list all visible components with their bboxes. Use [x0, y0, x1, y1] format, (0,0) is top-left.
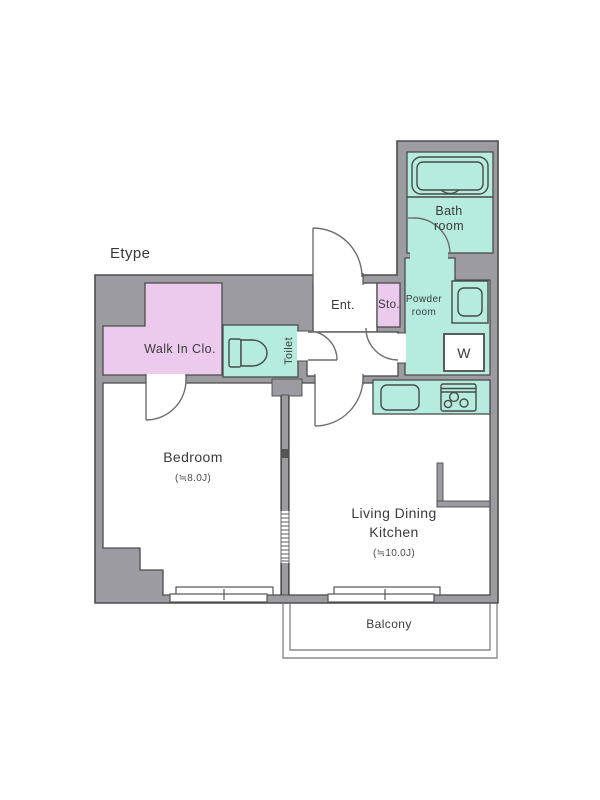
bedroom-label: Bedroom	[163, 449, 223, 465]
opening-bathroom	[410, 252, 448, 260]
washer-label: W	[457, 345, 471, 361]
ldk-size-label: (≒10.0J)	[373, 548, 415, 559]
washbasin-icon	[452, 281, 488, 323]
powder-label-line1: Powder	[406, 294, 443, 305]
ldk-label-line1: Living Dining	[351, 505, 436, 521]
bedroom-window-symbol	[170, 587, 273, 602]
partition-wall	[282, 395, 289, 595]
balcony-label: Balcony	[366, 617, 412, 631]
room-bathroom	[407, 152, 493, 253]
accordion-door-symbol	[280, 511, 290, 563]
floor-plan: Etype Bath room Powder room W Sto. Ent. …	[0, 0, 600, 800]
door-stop-mark	[282, 449, 289, 458]
room-hallway	[307, 332, 398, 376]
bedroom-size-label: (≒8.0J)	[175, 473, 211, 484]
bathroom-label-line1: Bath	[435, 204, 462, 218]
storage-label: Sto.	[378, 299, 400, 311]
bathroom-label-line2: room	[434, 219, 464, 233]
duct-wall-horizontal	[437, 501, 490, 507]
entrance-label: Ent.	[331, 298, 355, 312]
ldk-window-symbol	[328, 587, 440, 602]
wall-header-block	[272, 379, 302, 396]
powder-label-line2: room	[412, 307, 436, 318]
duct-wall-vertical	[437, 463, 443, 507]
kitchen-sink-icon	[381, 385, 419, 410]
plan-type-label: Etype	[110, 245, 150, 262]
ldk-label-line2: Kitchen	[369, 524, 419, 540]
room-ldk	[289, 383, 490, 595]
stove-icon	[441, 384, 476, 411]
toilet-label: Toilet	[283, 337, 295, 365]
floor-plan-page: Etype Bath room Powder room W Sto. Ent. …	[0, 0, 600, 800]
walk-in-closet-label: Walk In Clo.	[144, 342, 216, 356]
toilet-icon	[229, 339, 267, 367]
